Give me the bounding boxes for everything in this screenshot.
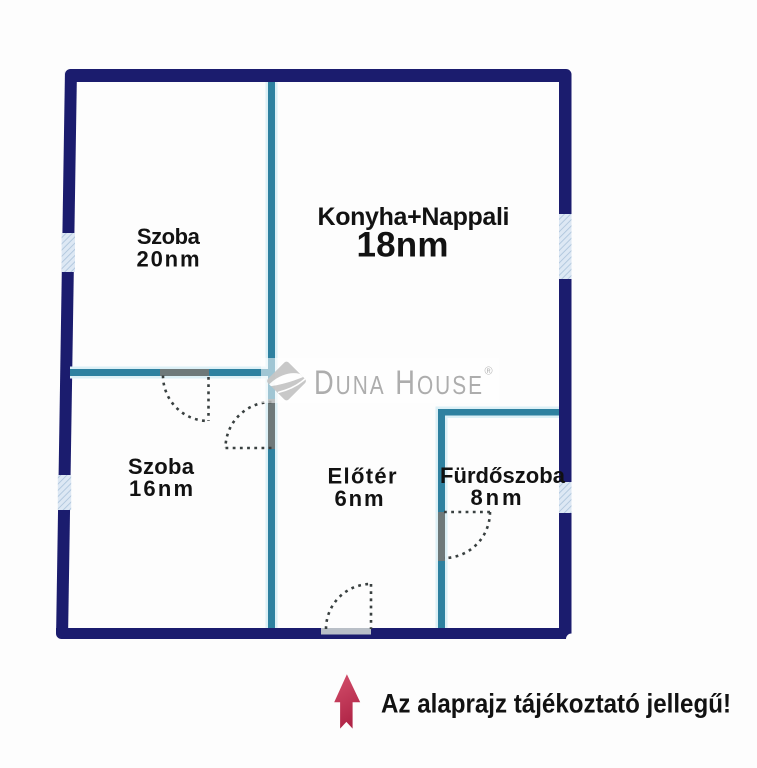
svg-text:Szoba: Szoba xyxy=(137,224,201,249)
svg-text:®: ® xyxy=(485,366,493,378)
svg-text:Előtér: Előtér xyxy=(328,464,397,489)
svg-text:18nm: 18nm xyxy=(357,226,449,265)
svg-text:DUNA HOUSE: DUNA HOUSE xyxy=(314,364,484,402)
svg-text:20nm: 20nm xyxy=(137,247,200,272)
svg-text:16nm: 16nm xyxy=(129,476,193,501)
svg-text:Az alaprajz tájékoztató jelleg: Az alaprajz tájékoztató jellegű! xyxy=(381,689,731,719)
svg-text:6nm: 6nm xyxy=(335,486,384,511)
svg-text:8nm: 8nm xyxy=(471,485,522,510)
